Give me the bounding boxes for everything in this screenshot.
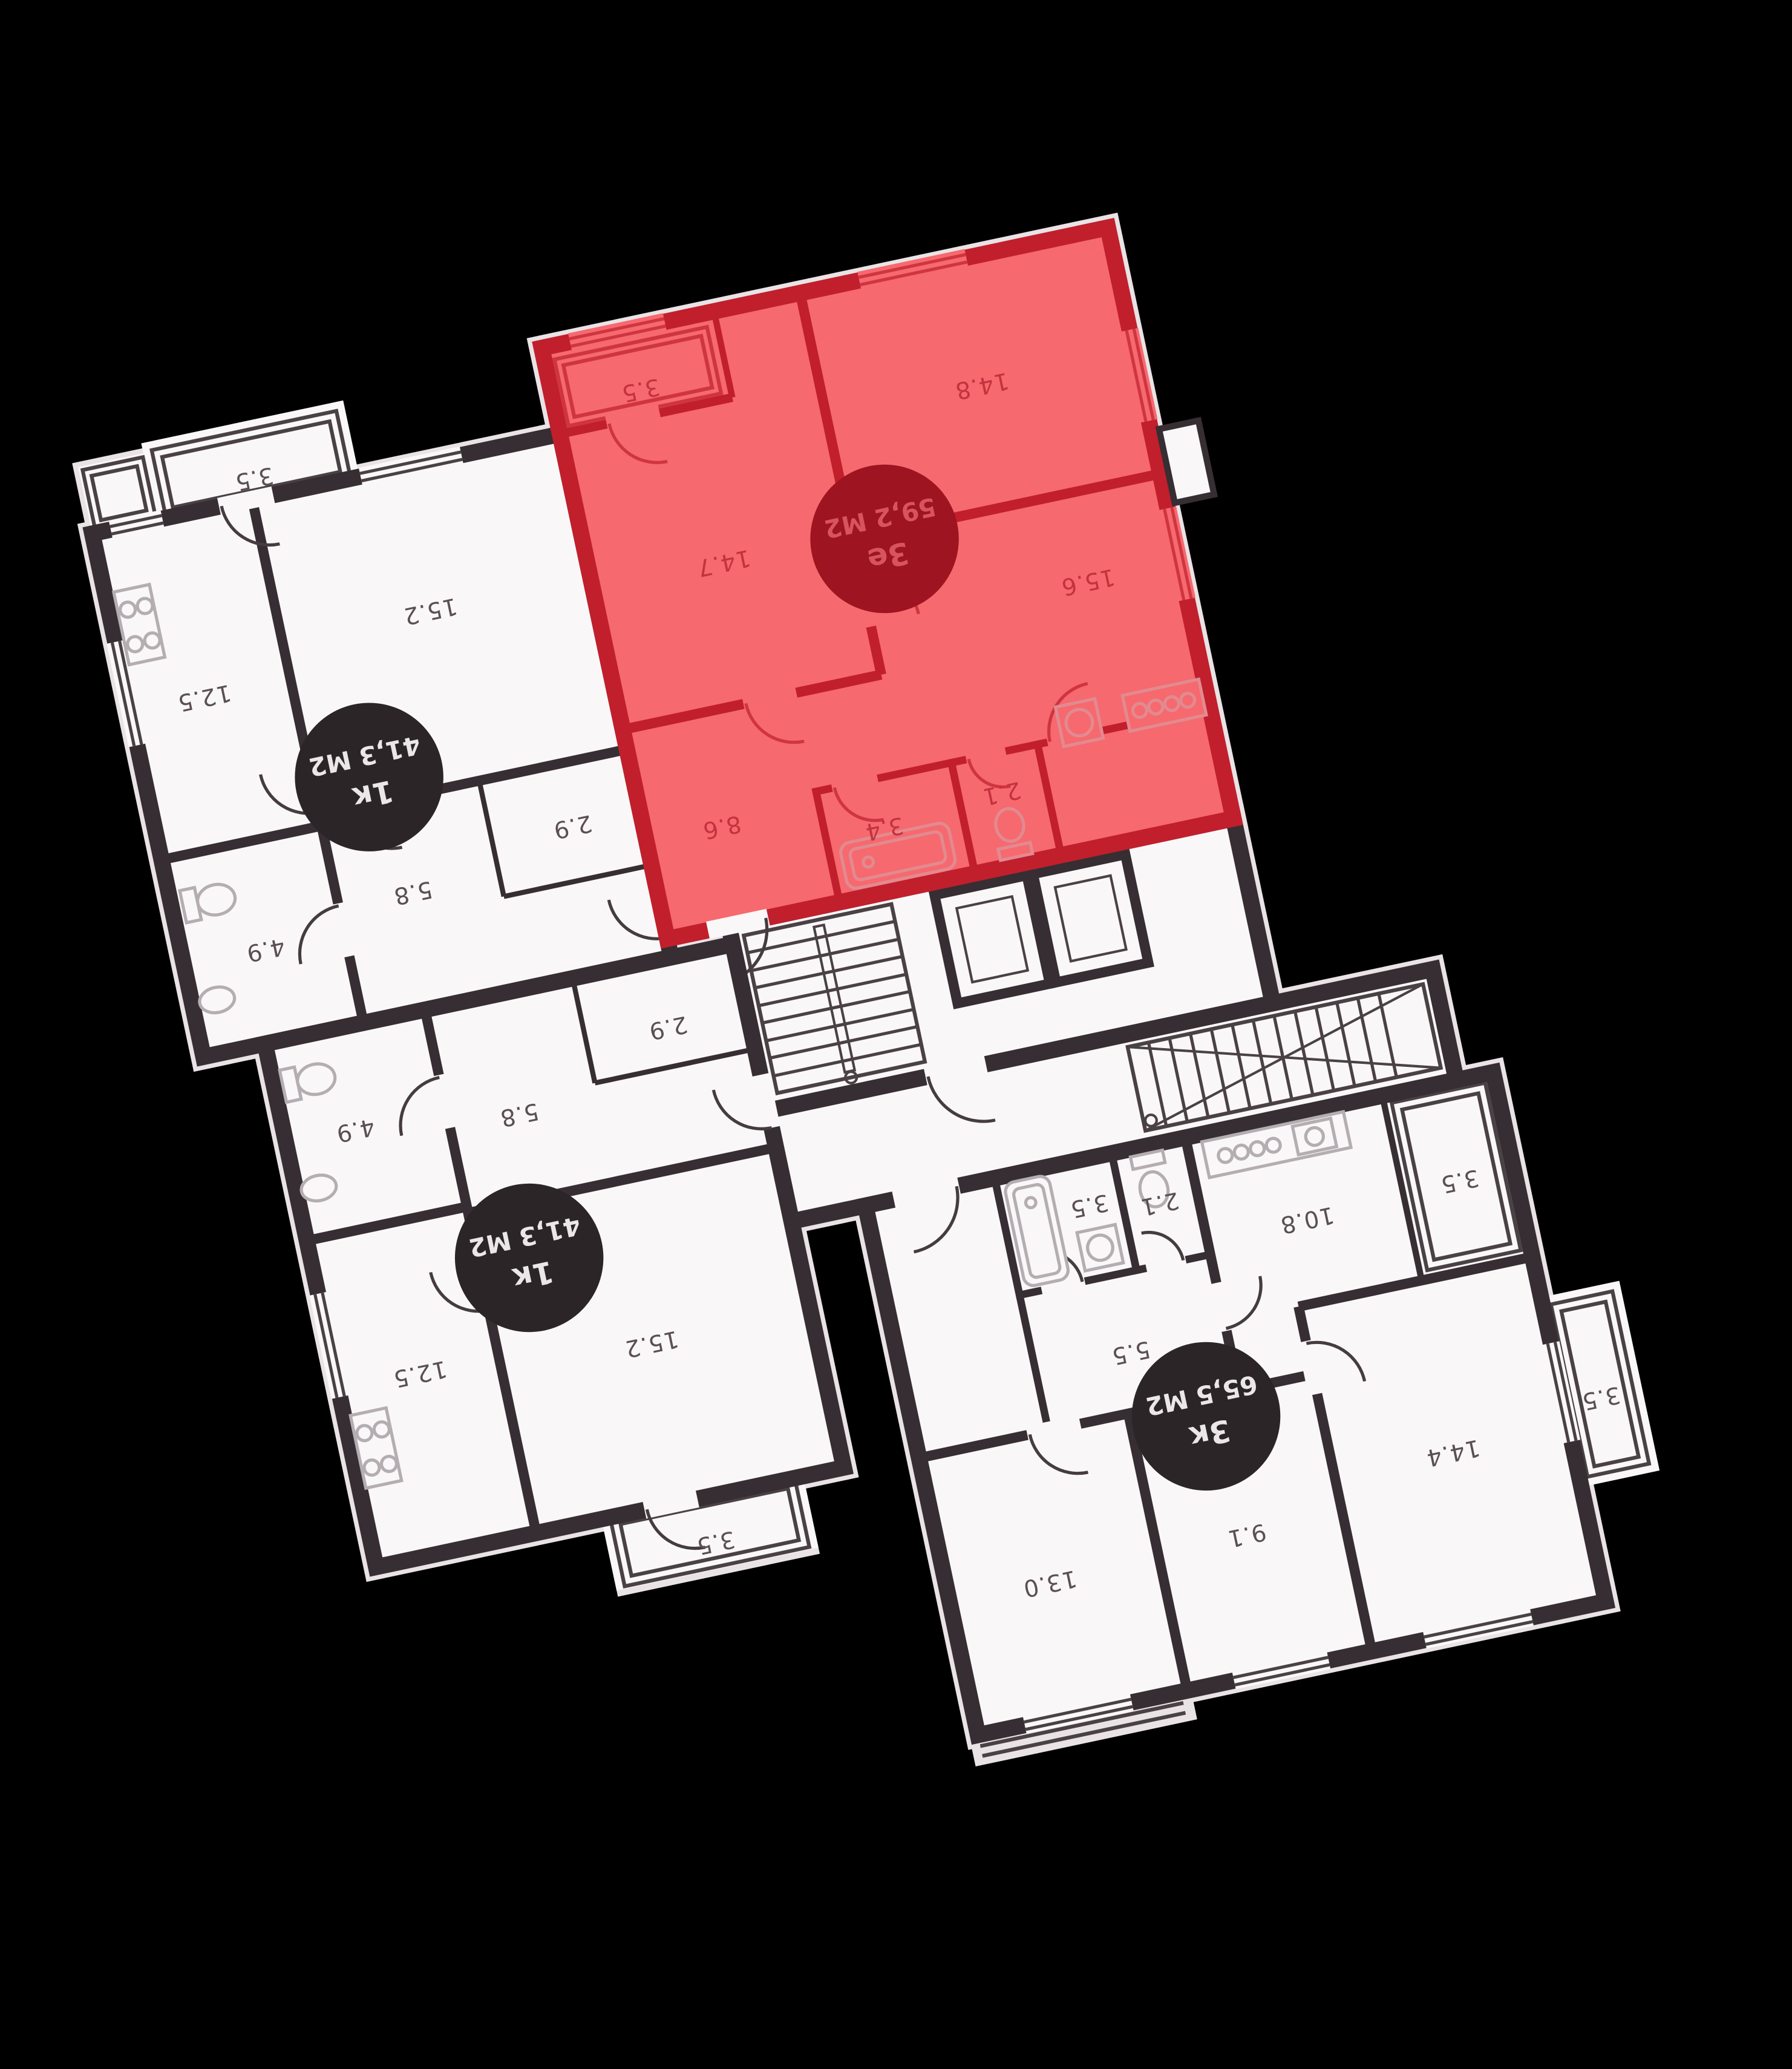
- washing-machine-icon: [1055, 699, 1103, 747]
- floorplan-viewer: 3.5 15.2 12.5 2.9 5.8 4.9 1к 41,3 М2: [0, 0, 1792, 2069]
- washing-machine-icon: [1077, 1225, 1123, 1271]
- floorplan-canvas: 3.5 15.2 12.5 2.9 5.8 4.9 1к 41,3 М2: [0, 0, 1792, 2069]
